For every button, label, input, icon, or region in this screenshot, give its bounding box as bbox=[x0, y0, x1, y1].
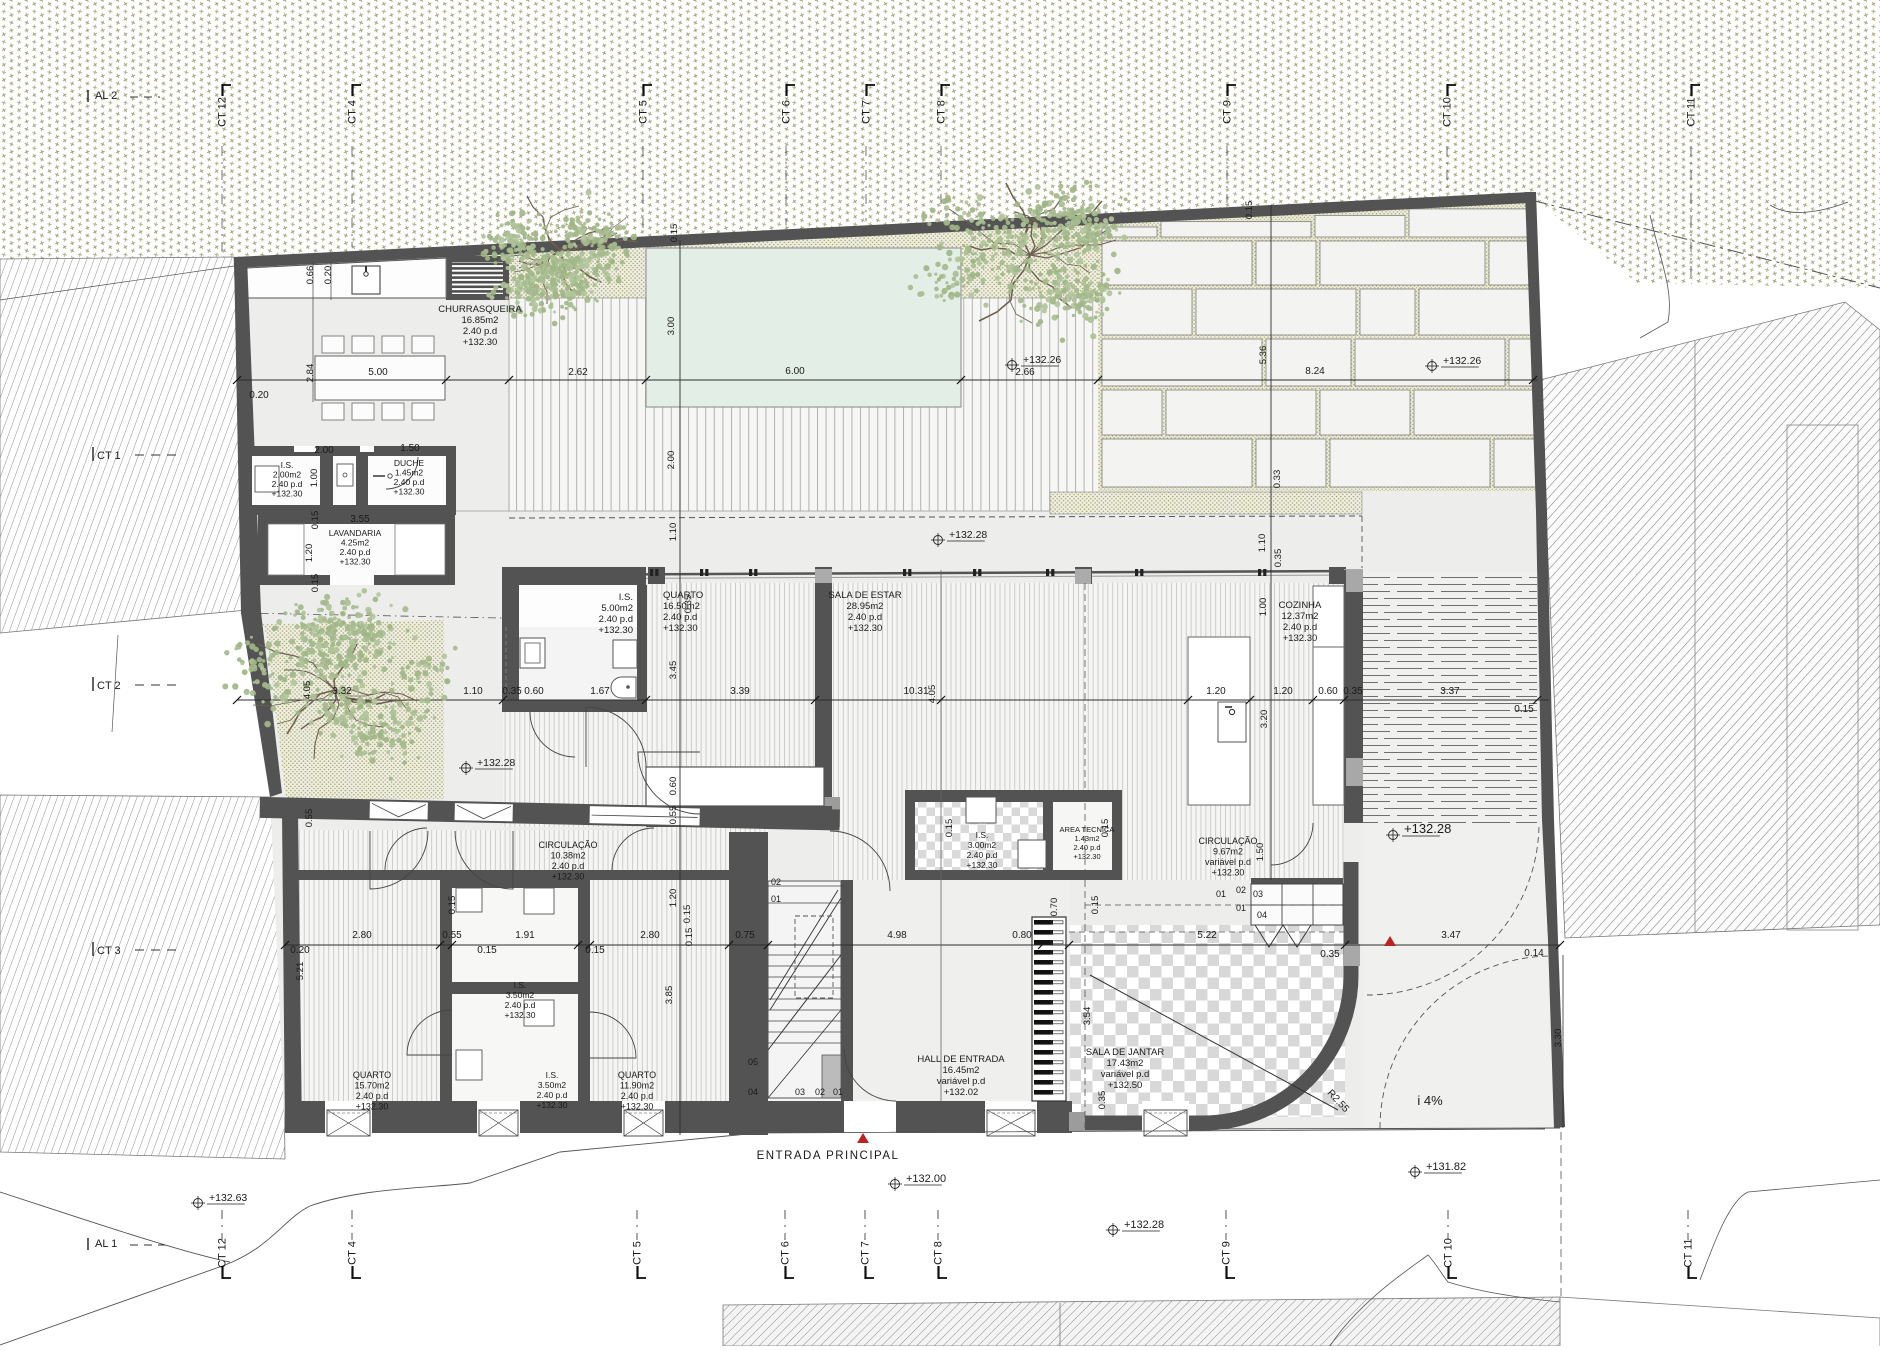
svg-text:0.35: 0.35 bbox=[1097, 1091, 1108, 1110]
svg-text:2.40 p.d: 2.40 p.d bbox=[463, 326, 497, 337]
svg-text:+132.28: +132.28 bbox=[1124, 1219, 1164, 1231]
svg-text:1.50: 1.50 bbox=[1255, 843, 1266, 862]
svg-text:0.35: 0.35 bbox=[1320, 949, 1340, 960]
svg-text:CIRCULAÇÃO: CIRCULAÇÃO bbox=[538, 840, 597, 850]
svg-text:28.95m2: 28.95m2 bbox=[847, 601, 884, 612]
svg-text:0.66: 0.66 bbox=[305, 266, 316, 285]
svg-text:AL 1: AL 1 bbox=[95, 1238, 117, 1250]
svg-text:10.31: 10.31 bbox=[903, 686, 928, 697]
svg-text:I.S.: I.S. bbox=[976, 830, 989, 840]
svg-text:variável p.d: variável p.d bbox=[1101, 1069, 1150, 1080]
svg-text:CT 7: CT 7 bbox=[860, 1241, 872, 1265]
svg-text:1.45m2: 1.45m2 bbox=[395, 468, 424, 478]
svg-text:2.40 p.d: 2.40 p.d bbox=[272, 479, 303, 489]
svg-text:0.33: 0.33 bbox=[1272, 470, 1283, 489]
svg-text:16.85m2: 16.85m2 bbox=[462, 315, 499, 326]
svg-text:0.35: 0.35 bbox=[1273, 549, 1284, 568]
svg-text:03: 03 bbox=[795, 1087, 805, 1097]
svg-text:0.15: 0.15 bbox=[669, 224, 680, 243]
svg-text:8.24: 8.24 bbox=[1305, 366, 1325, 377]
svg-text:9.67m2: 9.67m2 bbox=[1213, 847, 1243, 857]
svg-text:HALL DE ENTRADA: HALL DE ENTRADA bbox=[917, 1054, 1005, 1065]
svg-text:I.S.: I.S. bbox=[619, 592, 633, 603]
svg-text:I.S.: I.S. bbox=[546, 1070, 559, 1080]
svg-text:+132.50: +132.50 bbox=[1108, 1080, 1143, 1091]
svg-text:0.35: 0.35 bbox=[683, 595, 694, 614]
svg-text:+132.26: +132.26 bbox=[1023, 354, 1061, 366]
svg-text:CT 8: CT 8 bbox=[933, 1241, 945, 1265]
svg-text:2.66: 2.66 bbox=[1015, 367, 1035, 378]
svg-text:2.00m2: 2.00m2 bbox=[273, 470, 302, 480]
svg-text:0.75: 0.75 bbox=[735, 930, 755, 941]
svg-text:CT 7: CT 7 bbox=[861, 100, 873, 124]
svg-text:0.15: 0.15 bbox=[585, 945, 605, 956]
svg-text:01: 01 bbox=[833, 1087, 843, 1097]
svg-text:+132.30: +132.30 bbox=[463, 337, 498, 348]
svg-text:5.22: 5.22 bbox=[1197, 930, 1217, 941]
svg-text:+132.30: +132.30 bbox=[272, 489, 303, 499]
svg-text:1.20: 1.20 bbox=[1273, 686, 1293, 697]
svg-text:01: 01 bbox=[1236, 903, 1246, 913]
svg-text:2.84: 2.84 bbox=[305, 364, 316, 383]
svg-text:variável p.d: variável p.d bbox=[937, 1076, 986, 1087]
svg-text:0.20: 0.20 bbox=[249, 390, 269, 401]
svg-text:1.43m2: 1.43m2 bbox=[1074, 834, 1099, 843]
svg-text:+132.63: +132.63 bbox=[209, 1192, 247, 1204]
svg-text:+132.30: +132.30 bbox=[340, 557, 371, 567]
svg-text:05: 05 bbox=[748, 1057, 758, 1067]
svg-text:COZINHA: COZINHA bbox=[1279, 600, 1322, 611]
svg-text:0.55: 0.55 bbox=[668, 806, 679, 825]
svg-text:2.40 p.d: 2.40 p.d bbox=[621, 1091, 654, 1101]
svg-text:I.S.: I.S. bbox=[514, 980, 527, 990]
svg-text:2.80: 2.80 bbox=[640, 930, 660, 941]
svg-text:3.85: 3.85 bbox=[664, 986, 675, 1005]
svg-text:0.55: 0.55 bbox=[442, 930, 462, 941]
svg-text:2.40 p.d: 2.40 p.d bbox=[848, 612, 882, 623]
svg-text:0.15: 0.15 bbox=[310, 574, 321, 593]
svg-text:2.40 p.d: 2.40 p.d bbox=[552, 861, 585, 871]
svg-text:CT 1: CT 1 bbox=[97, 450, 121, 462]
svg-text:+132.28: +132.28 bbox=[1404, 821, 1451, 836]
svg-text:10.38m2: 10.38m2 bbox=[550, 851, 585, 861]
svg-text:2.80: 2.80 bbox=[352, 930, 372, 941]
svg-text:02: 02 bbox=[771, 877, 781, 887]
svg-text:ENTRADA PRINCIPAL: ENTRADA PRINCIPAL bbox=[757, 1150, 900, 1162]
svg-text:+132.30: +132.30 bbox=[621, 1102, 654, 1112]
svg-text:CT 2: CT 2 bbox=[97, 680, 121, 692]
svg-text:0.14: 0.14 bbox=[1524, 948, 1544, 959]
svg-text:variável p.d: variável p.d bbox=[1205, 857, 1251, 867]
svg-text:+132.30: +132.30 bbox=[598, 625, 633, 636]
svg-text:12.37m2: 12.37m2 bbox=[1282, 611, 1319, 622]
svg-text:4.25m2: 4.25m2 bbox=[341, 538, 370, 548]
svg-text:2.62: 2.62 bbox=[568, 367, 588, 378]
svg-text:02: 02 bbox=[1236, 885, 1246, 895]
svg-text:+132.30: +132.30 bbox=[848, 623, 883, 634]
svg-text:0.55: 0.55 bbox=[304, 809, 315, 828]
svg-text:2.40 p.d: 2.40 p.d bbox=[537, 1090, 568, 1100]
svg-text:0.15: 0.15 bbox=[682, 905, 693, 924]
svg-text:CT 4: CT 4 bbox=[347, 1241, 359, 1265]
svg-text:+132.30: +132.30 bbox=[663, 623, 698, 634]
svg-text:CT 11: CT 11 bbox=[1683, 1239, 1695, 1268]
svg-text:3.50m2: 3.50m2 bbox=[538, 1080, 567, 1090]
svg-text:1.10: 1.10 bbox=[463, 686, 483, 697]
svg-text:CT 12: CT 12 bbox=[217, 97, 229, 127]
svg-text:CT 12: CT 12 bbox=[217, 1238, 229, 1268]
svg-text:3.00m2: 3.00m2 bbox=[968, 840, 997, 850]
svg-text:3.00: 3.00 bbox=[666, 317, 677, 336]
svg-text:3.20: 3.20 bbox=[1259, 710, 1270, 729]
svg-text:+132.30: +132.30 bbox=[1283, 633, 1318, 644]
svg-text:+132.28: +132.28 bbox=[477, 757, 515, 769]
svg-text:2.40 p.d: 2.40 p.d bbox=[356, 1091, 389, 1101]
svg-text:CT 4: CT 4 bbox=[347, 100, 359, 124]
svg-text:+132.30: +132.30 bbox=[1073, 852, 1100, 861]
svg-text:04: 04 bbox=[748, 1087, 758, 1097]
svg-text:0.15: 0.15 bbox=[447, 896, 458, 915]
svg-text:CT 10: CT 10 bbox=[1442, 97, 1454, 127]
svg-text:0.15: 0.15 bbox=[944, 819, 955, 838]
svg-text:01: 01 bbox=[1216, 889, 1226, 899]
svg-text:3.37: 3.37 bbox=[1440, 686, 1460, 697]
svg-text:01: 01 bbox=[771, 894, 781, 904]
svg-text:16.50m2: 16.50m2 bbox=[663, 601, 700, 612]
svg-text:0.15: 0.15 bbox=[684, 928, 695, 947]
svg-text:2.40 p.d: 2.40 p.d bbox=[394, 477, 425, 487]
svg-text:i 4%: i 4% bbox=[1417, 1093, 1443, 1108]
svg-text:+132.28: +132.28 bbox=[949, 529, 987, 541]
svg-text:2.00: 2.00 bbox=[314, 445, 334, 456]
svg-text:0.60: 0.60 bbox=[668, 777, 679, 796]
svg-text:0.15: 0.15 bbox=[1514, 704, 1534, 715]
svg-text:0.15: 0.15 bbox=[477, 945, 497, 956]
svg-text:I.S.: I.S. bbox=[281, 460, 294, 470]
svg-text:2.40 p.d: 2.40 p.d bbox=[340, 547, 371, 557]
svg-text:+132.30: +132.30 bbox=[967, 860, 998, 870]
svg-text:1.20: 1.20 bbox=[668, 889, 679, 908]
svg-text:0.60: 0.60 bbox=[1318, 686, 1338, 697]
svg-text:02: 02 bbox=[815, 1087, 825, 1097]
svg-text:1.10: 1.10 bbox=[1257, 534, 1268, 553]
svg-text:5.21: 5.21 bbox=[295, 962, 306, 981]
svg-text:0.35: 0.35 bbox=[502, 686, 522, 697]
svg-text:CT 3: CT 3 bbox=[97, 945, 121, 957]
svg-text:1.00: 1.00 bbox=[1258, 598, 1269, 617]
svg-text:LAVANDARIA: LAVANDARIA bbox=[329, 528, 382, 538]
svg-text:+132.30: +132.30 bbox=[552, 872, 585, 882]
svg-text:CIRCULAÇÃO: CIRCULAÇÃO bbox=[1198, 836, 1257, 846]
svg-text:4.98: 4.98 bbox=[887, 930, 907, 941]
svg-text:CT 11: CT 11 bbox=[1686, 98, 1698, 127]
svg-text:1.00: 1.00 bbox=[309, 469, 320, 488]
svg-text:1.91: 1.91 bbox=[515, 930, 535, 941]
svg-text:6.00: 6.00 bbox=[785, 366, 805, 377]
svg-text:+132.30: +132.30 bbox=[1212, 868, 1245, 878]
svg-text:1.20: 1.20 bbox=[1206, 686, 1226, 697]
svg-text:3.32: 3.32 bbox=[332, 686, 352, 697]
svg-text:+132.30: +132.30 bbox=[537, 1100, 568, 1110]
svg-text:CT 9: CT 9 bbox=[1222, 100, 1234, 124]
svg-text:CT 8: CT 8 bbox=[936, 100, 948, 124]
svg-text:2.40 p.d: 2.40 p.d bbox=[1283, 622, 1317, 633]
svg-text:2.40 p.d: 2.40 p.d bbox=[599, 614, 633, 625]
svg-text:0.35: 0.35 bbox=[1343, 686, 1363, 697]
svg-text:04: 04 bbox=[1257, 910, 1267, 920]
svg-text:3.39: 3.39 bbox=[730, 686, 750, 697]
svg-text:1.20: 1.20 bbox=[304, 544, 315, 563]
svg-text:+132.26: +132.26 bbox=[1443, 355, 1481, 367]
svg-text:3.45: 3.45 bbox=[668, 661, 679, 680]
svg-text:CT 6: CT 6 bbox=[780, 1241, 792, 1265]
svg-text:5.00: 5.00 bbox=[368, 367, 388, 378]
svg-text:CHURRASQUEIRA: CHURRASQUEIRA bbox=[438, 304, 522, 315]
svg-text:5.00m2: 5.00m2 bbox=[601, 603, 633, 614]
svg-text:0.70: 0.70 bbox=[1049, 898, 1060, 917]
svg-text:CT 5: CT 5 bbox=[632, 1241, 644, 1265]
svg-text:1.67: 1.67 bbox=[590, 686, 610, 697]
svg-text:03: 03 bbox=[1253, 889, 1263, 899]
svg-text:+132.30: +132.30 bbox=[505, 1010, 536, 1020]
svg-text:+132.30: +132.30 bbox=[394, 487, 425, 497]
svg-text:SALA DE ESTAR: SALA DE ESTAR bbox=[828, 590, 901, 601]
svg-text:4.05: 4.05 bbox=[302, 681, 313, 700]
svg-text:1.10: 1.10 bbox=[668, 523, 679, 542]
svg-text:CT 10: CT 10 bbox=[1443, 1238, 1455, 1268]
svg-text:+132.30: +132.30 bbox=[356, 1102, 389, 1112]
svg-text:0.15: 0.15 bbox=[1090, 896, 1101, 915]
svg-text:0.80: 0.80 bbox=[1012, 930, 1032, 941]
svg-text:CT 9: CT 9 bbox=[1221, 1241, 1233, 1265]
svg-text:5.36: 5.36 bbox=[1258, 346, 1269, 365]
svg-text:4.05: 4.05 bbox=[927, 685, 938, 704]
svg-text:1.50: 1.50 bbox=[400, 443, 420, 454]
svg-text:3.55: 3.55 bbox=[350, 514, 370, 525]
svg-text:+132.02: +132.02 bbox=[944, 1087, 979, 1098]
svg-text:2.40 p.d: 2.40 p.d bbox=[967, 850, 998, 860]
svg-text:17.43m2: 17.43m2 bbox=[1107, 1058, 1144, 1069]
svg-text:+131.82: +131.82 bbox=[1426, 1161, 1466, 1173]
svg-text:3.47: 3.47 bbox=[1441, 930, 1461, 941]
svg-text:+132.00: +132.00 bbox=[906, 1173, 946, 1185]
svg-text:15.70m2: 15.70m2 bbox=[354, 1081, 389, 1091]
svg-text:CT 6: CT 6 bbox=[781, 100, 793, 124]
svg-text:0.15: 0.15 bbox=[310, 511, 321, 530]
svg-text:2.40 p.d: 2.40 p.d bbox=[1073, 843, 1100, 852]
svg-text:16.45m2: 16.45m2 bbox=[943, 1065, 980, 1076]
svg-text:0.15: 0.15 bbox=[1100, 819, 1111, 838]
svg-text:DUCHE: DUCHE bbox=[394, 458, 425, 468]
svg-text:2.00: 2.00 bbox=[666, 451, 677, 470]
svg-text:SALA DE JANTAR: SALA DE JANTAR bbox=[1086, 1047, 1165, 1058]
svg-text:QUARTO: QUARTO bbox=[618, 1070, 656, 1080]
svg-text:QUARTO: QUARTO bbox=[353, 1070, 391, 1080]
svg-text:0.20: 0.20 bbox=[290, 945, 310, 956]
svg-text:3.50m2: 3.50m2 bbox=[506, 990, 535, 1000]
svg-text:0.15: 0.15 bbox=[1244, 201, 1255, 220]
svg-text:0.20: 0.20 bbox=[323, 266, 334, 285]
svg-text:AL 2: AL 2 bbox=[95, 90, 117, 102]
svg-text:0.60: 0.60 bbox=[524, 686, 544, 697]
svg-text:CT 5: CT 5 bbox=[638, 100, 650, 124]
svg-text:3.30: 3.30 bbox=[1553, 1029, 1564, 1048]
svg-text:2.40 p.d: 2.40 p.d bbox=[505, 1000, 536, 1010]
svg-text:11.90m2: 11.90m2 bbox=[620, 1081, 654, 1091]
svg-text:3.54: 3.54 bbox=[1082, 1007, 1093, 1026]
